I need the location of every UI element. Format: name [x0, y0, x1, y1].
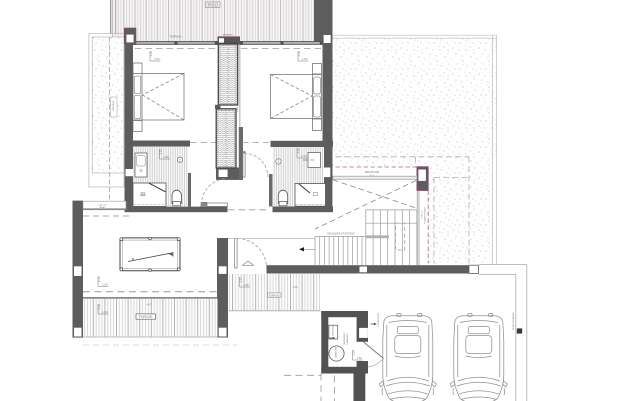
svg-text:1.73 L.O: 1.73 L.O	[422, 211, 424, 220]
svg-text:PORCHE: PORCHE	[139, 315, 153, 319]
svg-text:ESCALERA A P.SOTANO: ESCALERA A P.SOTANO	[327, 233, 354, 236]
svg-text:ALAC: ALAC	[100, 206, 106, 209]
svg-text:PISO: PISO	[207, 3, 218, 8]
svg-text:TERRAZA: TERRAZA	[112, 100, 115, 111]
svg-text:LAVADERO: LAVADERO	[346, 333, 349, 344]
svg-text:2: 2	[179, 158, 181, 162]
svg-text:4.07: 4.07	[147, 304, 152, 307]
svg-text:PUERTA GARAJE: PUERTA GARAJE	[512, 312, 515, 330]
svg-text:LAVADORA: LAVADORA	[335, 347, 338, 358]
svg-text:2.10: 2.10	[149, 51, 153, 57]
svg-text:1.60: 1.60	[154, 57, 160, 61]
svg-text:1: 1	[278, 160, 280, 164]
svg-text:1.40: 1.40	[293, 286, 298, 289]
svg-text:2.60: 2.60	[236, 107, 239, 112]
svg-text:TENDEDERO: TENDEDERO	[344, 332, 346, 345]
svg-text:140 x 60: 140 x 60	[98, 205, 107, 207]
svg-text:TERRAZA: TERRAZA	[269, 294, 281, 297]
svg-text:MIRADOR: MIRADOR	[365, 170, 380, 174]
svg-text:TERRAZA: TERRAZA	[169, 34, 181, 38]
svg-text:ARMARIO: ARMARIO	[223, 34, 234, 37]
svg-text:CALDERA: CALDERA	[331, 325, 334, 336]
svg-text:P1-C: P1-C	[370, 175, 375, 177]
svg-text:CUADRO ELECT.: CUADRO ELECT.	[424, 206, 427, 224]
svg-text:PTE ACCESO: PTE ACCESO	[377, 313, 380, 327]
